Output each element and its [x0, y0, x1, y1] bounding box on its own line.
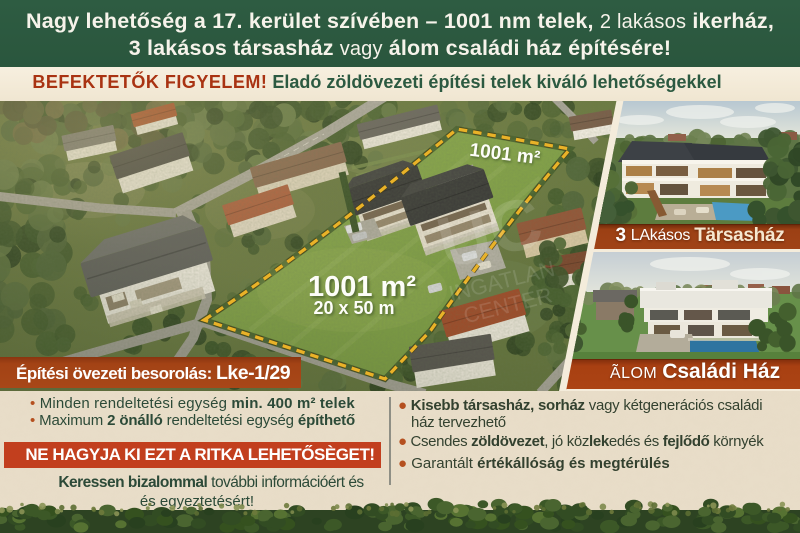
- svg-text:20 x 50 m: 20 x 50 m: [313, 298, 394, 318]
